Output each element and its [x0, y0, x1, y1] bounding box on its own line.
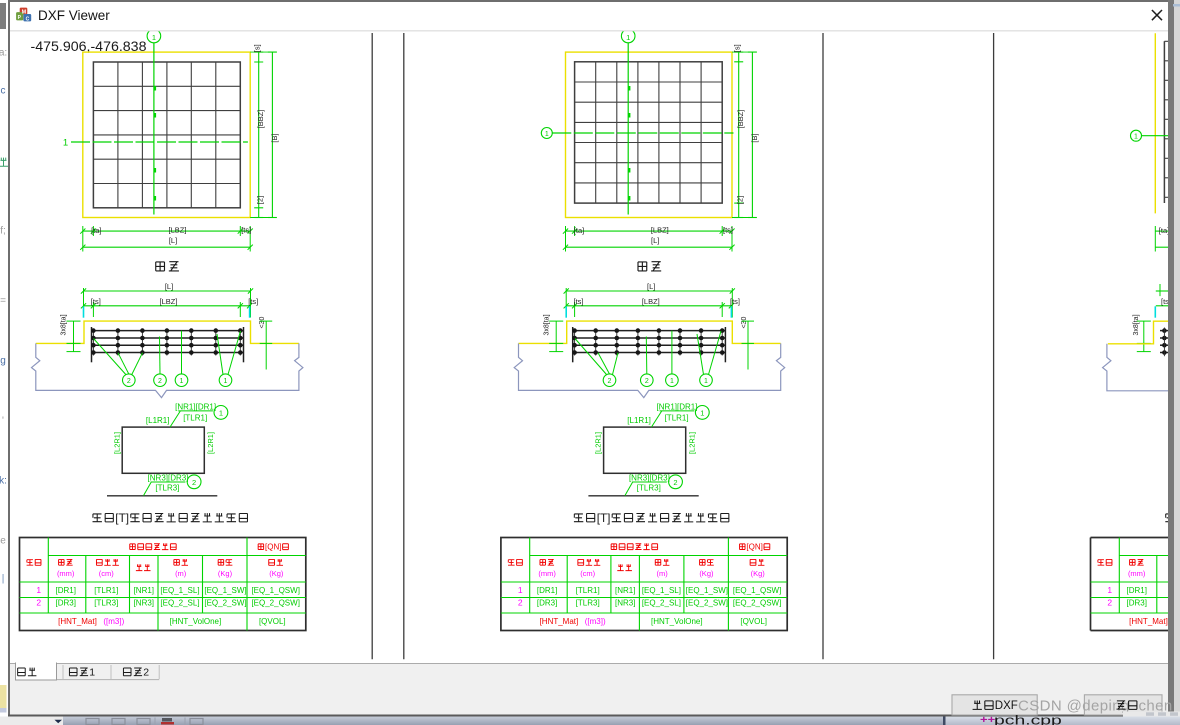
svg-text:(Kg): (Kg) — [751, 569, 766, 578]
svg-text:<30: <30 — [259, 317, 266, 329]
svg-text:[L2R1]: [L2R1] — [112, 432, 121, 454]
svg-text:[QVOL]: [QVOL] — [740, 617, 767, 626]
svg-text:pch.cpp: pch.cpp — [994, 714, 1062, 725]
svg-text:1: 1 — [670, 378, 674, 385]
svg-text:=: = — [0, 296, 6, 307]
svg-text:3x8[ta]: 3x8[ta] — [543, 314, 550, 335]
svg-text:[L]: [L] — [647, 282, 655, 291]
svg-text:[NR3]: [NR3] — [615, 599, 635, 608]
svg-text:(Kg): (Kg) — [218, 569, 233, 578]
svg-text:([m3]): ([m3]) — [585, 617, 606, 626]
svg-text:2: 2 — [143, 667, 149, 679]
svg-text:[LBZ]: [LBZ] — [642, 297, 660, 306]
svg-text:[DR1]: [DR1] — [537, 586, 557, 595]
svg-text:1: 1 — [89, 667, 95, 679]
svg-text:[TLR1]: [TLR1] — [183, 413, 207, 422]
svg-text:[L2R1]: [L2R1] — [688, 432, 697, 454]
svg-text:[ts]: [ts] — [573, 297, 583, 306]
svg-text:[TLR3]: [TLR3] — [637, 484, 661, 493]
svg-text:[DR3]: [DR3] — [537, 599, 557, 608]
svg-text:2: 2 — [127, 378, 131, 385]
svg-text:[DR1]: [DR1] — [55, 586, 75, 595]
svg-text:[QN]: [QN] — [265, 542, 281, 551]
svg-text:[L1R1]: [L1R1] — [146, 416, 170, 425]
svg-text:e: e — [0, 536, 6, 547]
svg-text:[L1R1]: [L1R1] — [627, 416, 651, 425]
svg-text:k:: k: — [0, 476, 7, 487]
svg-text:[2]: [2] — [736, 196, 745, 204]
svg-text:[TLR1]: [TLR1] — [665, 413, 689, 422]
svg-text:C: C — [26, 16, 30, 22]
svg-text:2: 2 — [192, 478, 196, 487]
svg-text:[ts]: [ts] — [241, 225, 251, 234]
svg-text:a:: a: — [0, 48, 7, 59]
svg-text:[ts]: [ts] — [730, 297, 740, 306]
svg-text:[TLR3]: [TLR3] — [155, 484, 179, 493]
svg-text:[EQ_2_SL]: [EQ_2_SL] — [160, 599, 199, 608]
svg-text:[L]: [L] — [165, 282, 173, 291]
svg-text:(Kg): (Kg) — [699, 569, 714, 578]
svg-text:[EQ_2_SL]: [EQ_2_SL] — [642, 599, 681, 608]
svg-text:2: 2 — [36, 598, 41, 608]
svg-text:[HNT_VolOne]: [HNT_VolOne] — [651, 617, 703, 626]
svg-text:f;: f; — [0, 226, 6, 237]
svg-text:[ta]: [ta] — [1159, 226, 1169, 235]
svg-text:[EQ_1_QSW]: [EQ_1_QSW] — [251, 586, 299, 595]
svg-text:[L2R1]: [L2R1] — [206, 432, 215, 454]
svg-text:2: 2 — [673, 478, 677, 487]
svg-text:c: c — [1, 86, 6, 97]
svg-text:1: 1 — [152, 33, 156, 42]
svg-text:1: 1 — [700, 409, 704, 418]
svg-text:[ts]: [ts] — [91, 297, 101, 306]
svg-text:[s]: [s] — [253, 44, 262, 52]
svg-text:[EQ_2_SW]: [EQ_2_SW] — [686, 599, 728, 608]
svg-text:[BBZ]: [BBZ] — [736, 110, 745, 129]
svg-text:[TLR1]: [TLR1] — [94, 586, 118, 595]
svg-text:[BBZ]: [BBZ] — [256, 110, 265, 129]
svg-text:1: 1 — [518, 585, 523, 595]
svg-text:[LBZ]: [LBZ] — [160, 297, 178, 306]
svg-text:[TLR1]: [TLR1] — [576, 586, 600, 595]
svg-text:<30: <30 — [741, 317, 748, 329]
svg-text:1: 1 — [1107, 585, 1112, 595]
svg-text:[L2R1]: [L2R1] — [594, 432, 603, 454]
svg-text:[QVOL]: [QVOL] — [259, 617, 286, 626]
svg-text:1: 1 — [224, 378, 228, 385]
svg-text:[TLR3]: [TLR3] — [576, 599, 600, 608]
svg-text:|: | — [2, 574, 5, 585]
svg-text:[L]: [L] — [651, 236, 659, 245]
svg-text:(cm): (cm) — [580, 569, 595, 578]
svg-text:[EQ_2_SW]: [EQ_2_SW] — [204, 599, 246, 608]
svg-text:3x8[ta]: 3x8[ta] — [61, 314, 68, 335]
svg-text:1: 1 — [36, 585, 41, 595]
svg-text:[LBZ]: [LBZ] — [169, 225, 187, 234]
svg-text:[EQ_1_SL]: [EQ_1_SL] — [160, 586, 199, 595]
svg-text:(Kg): (Kg) — [269, 569, 284, 578]
svg-text:[T]: [T] — [597, 511, 611, 525]
svg-text:g: g — [0, 356, 6, 367]
svg-text:[HNT_Mat]: [HNT_Mat] — [1129, 617, 1168, 626]
svg-text:[QN]: [QN] — [746, 542, 762, 551]
svg-text:[ts]: [ts] — [723, 225, 733, 234]
svg-text:2: 2 — [645, 378, 649, 385]
svg-text:[DR1]: [DR1] — [1126, 586, 1146, 595]
svg-text:[2]: [2] — [255, 196, 264, 204]
svg-text:(mm): (mm) — [538, 569, 556, 578]
svg-text:[NR1][DR1]: [NR1][DR1] — [657, 403, 698, 412]
svg-text:[L]: [L] — [169, 236, 177, 245]
svg-text:(mm): (mm) — [57, 569, 75, 578]
svg-text:1: 1 — [545, 131, 549, 138]
svg-text:[NR1]: [NR1] — [615, 586, 635, 595]
svg-text:[NR3][DR3]: [NR3][DR3] — [629, 474, 670, 483]
svg-text:[EQ_2_QSW]: [EQ_2_QSW] — [733, 599, 781, 608]
svg-text:[NR3][DR3]: [NR3][DR3] — [148, 474, 189, 483]
svg-text:2: 2 — [158, 378, 162, 385]
svg-text:[T]: [T] — [115, 511, 129, 525]
svg-text:[EQ_1_SL]: [EQ_1_SL] — [642, 586, 681, 595]
svg-text:1: 1 — [1134, 134, 1138, 141]
svg-text:(m): (m) — [656, 569, 668, 578]
svg-text:[B]: [B] — [750, 133, 759, 142]
svg-text:([m3]): ([m3]) — [103, 617, 124, 626]
svg-text:[LBZ]: [LBZ] — [651, 225, 669, 234]
svg-text:M: M — [22, 10, 27, 16]
svg-text:2: 2 — [608, 378, 612, 385]
svg-text:[TLR3]: [TLR3] — [94, 599, 118, 608]
svg-text:[DR3]: [DR3] — [1126, 599, 1146, 608]
svg-text:[ta]: [ta] — [574, 226, 584, 235]
svg-text:1: 1 — [219, 409, 223, 418]
svg-text:[ta]: [ta] — [91, 226, 101, 235]
svg-text:[EQ_1_SW]: [EQ_1_SW] — [204, 586, 246, 595]
svg-text:[NR1]: [NR1] — [134, 586, 154, 595]
svg-text:[HNT_Mat]: [HNT_Mat] — [58, 617, 97, 626]
svg-text:3x8[ta]: 3x8[ta] — [1133, 314, 1140, 335]
svg-text:[ts]: [ts] — [248, 297, 258, 306]
svg-text:[EQ_2_QSW]: [EQ_2_QSW] — [251, 599, 299, 608]
svg-text:2: 2 — [1107, 598, 1112, 608]
svg-text:[NR3]: [NR3] — [134, 599, 154, 608]
svg-text:DXF Viewer: DXF Viewer — [38, 8, 110, 23]
svg-text:1: 1 — [626, 33, 630, 42]
svg-text:[s]: [s] — [733, 44, 742, 52]
svg-text:(m): (m) — [175, 569, 187, 578]
svg-text:[EQ_1_QSW]: [EQ_1_QSW] — [733, 586, 781, 595]
svg-text:1: 1 — [180, 378, 184, 385]
svg-text:[DR3]: [DR3] — [55, 599, 75, 608]
svg-text:(mm): (mm) — [1128, 569, 1146, 578]
svg-text:1: 1 — [63, 137, 68, 148]
svg-text:[B]: [B] — [270, 133, 279, 142]
svg-text:1: 1 — [704, 378, 708, 385]
svg-text:[NR1][DR1]: [NR1][DR1] — [175, 403, 216, 412]
svg-text:[HNT_Mat]: [HNT_Mat] — [540, 617, 579, 626]
svg-text:2: 2 — [518, 598, 523, 608]
svg-text:DXF: DXF — [995, 700, 1018, 712]
svg-text:[HNT_VolOne]: [HNT_VolOne] — [170, 617, 222, 626]
svg-text:[EQ_1_SW]: [EQ_1_SW] — [686, 586, 728, 595]
svg-text:': ' — [2, 416, 4, 427]
svg-text:(cm): (cm) — [99, 569, 114, 578]
